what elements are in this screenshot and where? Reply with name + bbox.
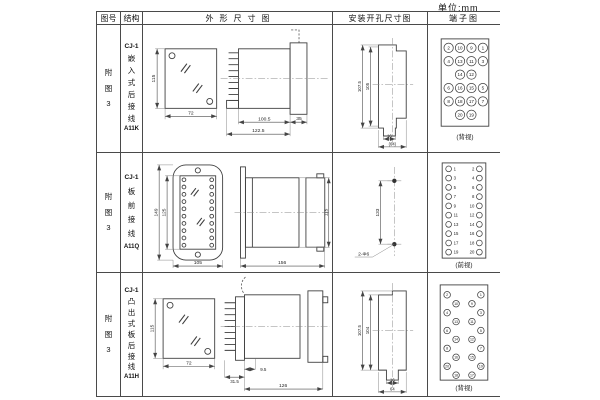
terminal-number: 2 xyxy=(472,166,475,171)
fig-char: 附 xyxy=(105,69,113,77)
model-label: CJ-1 xyxy=(124,44,138,51)
outline-drawing-row3: 115 72 9.5 31.5 126 xyxy=(143,273,332,396)
struct-char: 接 xyxy=(128,103,136,111)
terminal-number: 17 xyxy=(454,240,459,245)
fig-no-row2: 附 图 3 xyxy=(97,153,121,273)
terminal-number: 10 xyxy=(454,302,458,306)
dim-front-width: 105 xyxy=(194,260,202,266)
struct-char: 前 xyxy=(128,202,136,210)
terminal-number: 12 xyxy=(470,213,475,218)
drill-holes: 133 2-Φ6 xyxy=(355,167,402,258)
dim-cutout-h1: 16 xyxy=(387,133,392,138)
dim-side-b: 31.5 xyxy=(230,379,239,384)
struct-char: 板 xyxy=(128,331,136,339)
dim-cutout-v2: 104 xyxy=(365,326,370,334)
fig-char: 图 xyxy=(105,85,113,93)
terminal-number: 2 xyxy=(446,293,448,297)
terminal-number: 7 xyxy=(480,347,482,351)
terminal-number: 3 xyxy=(480,311,482,315)
outline-cell-row3: 115 72 9.5 31.5 126 xyxy=(143,273,333,397)
terminal-number: 7 xyxy=(454,194,457,199)
structure-row3: CJ-1 凸 出 式 板 后 接 线 A11H xyxy=(121,273,143,397)
terminal-number: 6 xyxy=(472,185,475,190)
outline-cell-row2: 149 125 105 156 115 xyxy=(143,153,333,273)
cutout-profile: 107.5 104 16 64 xyxy=(357,283,413,393)
terminal-number: 20 xyxy=(458,112,464,117)
terminal-number: 15 xyxy=(470,356,474,360)
terminal-number: 18 xyxy=(454,373,458,377)
dim-front-h2: 125 xyxy=(162,208,168,216)
dim-cutout-h2: 64 xyxy=(390,386,395,391)
struct-char: 式 xyxy=(128,79,136,87)
terminal-number: 3 xyxy=(454,176,457,181)
terminal-number: 19 xyxy=(479,365,483,369)
dim-side-a: 9.5 xyxy=(260,367,267,372)
struct-char: 入 xyxy=(128,67,136,75)
header-structure: 结构 xyxy=(121,12,143,25)
struct-char: 接 xyxy=(128,353,136,361)
dim-front-width: 72 xyxy=(188,110,194,116)
terminal-number: 14 xyxy=(454,338,458,342)
terminal-number: 8 xyxy=(472,194,475,199)
dim-cutout-v1: 107.5 xyxy=(357,324,362,336)
structure-row1: CJ-1 嵌 入 式 后 接 线 A11K xyxy=(121,25,143,153)
terminal-number: 4 xyxy=(446,311,448,315)
mounting-cell-row1: 107.5 105 16 (64) xyxy=(333,25,428,153)
side-view: 100.5 122.5 35 xyxy=(221,30,328,136)
dim-side-b: 115 xyxy=(323,208,329,216)
dim-cutout-h1: 16 xyxy=(390,378,395,383)
terminal-number: 16 xyxy=(454,356,458,360)
fig-no-row3: 附 图 3 xyxy=(97,273,121,397)
terminal-number: 19 xyxy=(454,250,459,255)
terminal-number: 1 xyxy=(454,166,457,171)
terminal-number: 4 xyxy=(472,176,475,181)
outline-drawing-row1: 115 72 100.5 122.5 35 xyxy=(143,25,332,152)
front-view: 115 72 xyxy=(149,299,214,369)
model-label: CJ-1 xyxy=(124,288,138,295)
terminal-number: 20 xyxy=(470,250,475,255)
terminal-number: 10 xyxy=(458,45,464,50)
side-view: 156 115 xyxy=(235,167,330,268)
dim-front-h1: 149 xyxy=(153,208,159,216)
terminal-number: 10 xyxy=(470,203,475,208)
struct-char: 凸 xyxy=(128,298,136,306)
terminal-number: 11 xyxy=(469,59,474,64)
mounting-cell-row3: 107.5 104 16 64 xyxy=(333,273,428,397)
fig-char: 3 xyxy=(106,100,110,108)
dim-front-height: 115 xyxy=(149,324,155,332)
type-code: A11H xyxy=(124,374,139,380)
terminal-number: 12 xyxy=(469,72,475,77)
terminal-number: 11 xyxy=(454,213,459,218)
terminal-number: 12 xyxy=(470,338,474,342)
terminal-number: 1 xyxy=(480,293,482,297)
dim-cutout-v2: 105 xyxy=(365,82,370,90)
terminal-number: 18 xyxy=(470,240,475,245)
dim-cutout-h2: (64) xyxy=(389,141,397,146)
struct-char: 线 xyxy=(128,115,136,123)
view-label: (背视) xyxy=(456,132,473,141)
terminal-grid: 2 10 9 1 4 13 11 3 14 12 6 16 15 5 8 18 … xyxy=(441,39,489,126)
fig-no-row1: 附 图 3 xyxy=(97,25,121,153)
dim-front-height: 115 xyxy=(151,74,157,82)
terminal-diagram-row3: 2 10 4 13 6 14 8 16 20 18 1 9 3 11 5 12 … xyxy=(428,273,500,396)
fig-char: 附 xyxy=(105,315,113,323)
terminal-number: 17 xyxy=(469,99,475,104)
dim-front-width: 72 xyxy=(186,360,192,366)
struct-char: 式 xyxy=(128,320,136,328)
header-outline: 外形尺寸图 xyxy=(143,12,333,25)
header-mounting: 安装开孔尺寸图 xyxy=(333,12,428,25)
mounting-drawing-row1: 107.5 105 16 (64) xyxy=(333,25,427,152)
terminal-number: 20 xyxy=(445,365,449,369)
type-code: A11Q xyxy=(124,244,139,250)
terminal-number: 11 xyxy=(470,320,474,324)
struct-char: 接 xyxy=(128,216,136,224)
terminal-cell-row2: 1 3 5 7 9 11 13 15 17 19 2 4 6 8 10 12 1… xyxy=(428,153,500,273)
terminal-number: 16 xyxy=(458,86,464,91)
terminal-number: 8 xyxy=(446,347,448,351)
model-label: CJ-1 xyxy=(124,175,138,182)
hole-spec-label: 2-Φ6 xyxy=(358,252,369,258)
spec-table: 图号 结构 外形尺寸图 安装开孔尺寸图 端子图 附 图 3 CJ-1 嵌 入 式… xyxy=(96,11,500,397)
terminal-number: 15 xyxy=(454,231,459,236)
dim-side-a: 100.5 xyxy=(258,116,271,122)
dim-side-c: 35 xyxy=(296,116,302,122)
terminal-number: 9 xyxy=(454,203,457,208)
header-terminal: 端子图 xyxy=(428,12,500,25)
view-label: (背视) xyxy=(455,383,472,392)
terminal-number: 19 xyxy=(469,112,475,117)
terminal-cell-row1: 2 10 9 1 4 13 11 3 14 12 6 16 15 5 8 18 … xyxy=(428,25,500,153)
fig-char: 图 xyxy=(105,209,113,217)
terminal-number: 14 xyxy=(458,72,464,77)
terminal-grid: 1 3 5 7 9 11 13 15 17 19 2 4 6 8 10 12 1… xyxy=(442,163,486,258)
struct-char: 出 xyxy=(128,309,136,317)
terminal-number: 9 xyxy=(471,302,473,306)
mounting-drawing-row2: 133 2-Φ6 xyxy=(333,153,427,272)
fig-char: 3 xyxy=(106,346,110,354)
terminal-number: 5 xyxy=(454,185,457,190)
terminal-number: 15 xyxy=(469,86,475,91)
fig-char: 3 xyxy=(106,224,110,232)
side-view: 9.5 31.5 126 xyxy=(221,277,330,391)
terminal-diagram-row1: 2 10 9 1 4 13 11 3 14 12 6 16 15 5 8 18 … xyxy=(428,25,500,152)
terminal-cell-row3: 2 10 4 13 6 14 8 16 20 18 1 9 3 11 5 12 … xyxy=(428,273,500,397)
struct-char: 后 xyxy=(128,91,136,99)
mounting-cell-row2: 133 2-Φ6 xyxy=(333,153,428,273)
mounting-drawing-row3: 107.5 104 16 64 xyxy=(333,273,427,396)
header-fig-no: 图号 xyxy=(97,12,121,25)
terminal-number: 6 xyxy=(446,329,448,333)
front-view: 149 125 105 xyxy=(153,165,222,268)
dim-cutout-v1: 107.5 xyxy=(357,80,362,92)
cutout-profile: 107.5 105 16 (64) xyxy=(357,38,413,148)
struct-char: 线 xyxy=(128,363,136,371)
terminal-number: 14 xyxy=(470,222,475,227)
struct-char: 板 xyxy=(128,188,136,196)
terminal-number: 13 xyxy=(458,59,464,64)
dim-hole-spacing: 133 xyxy=(375,208,381,216)
terminal-number: 5 xyxy=(480,329,482,333)
terminal-number: 13 xyxy=(454,320,458,324)
structure-row2: CJ-1 板 前 接 线 A11Q xyxy=(121,153,143,273)
terminal-number: 13 xyxy=(454,222,459,227)
terminal-number: 17 xyxy=(470,373,474,377)
type-code: A11K xyxy=(124,126,139,132)
outline-drawing-row2: 149 125 105 156 115 xyxy=(143,153,332,272)
dim-side-c: 126 xyxy=(279,383,287,389)
struct-char: 后 xyxy=(128,342,136,350)
terminal-diagram-row2: 1 3 5 7 9 11 13 15 17 19 2 4 6 8 10 12 1… xyxy=(428,153,500,272)
dim-side-b: 122.5 xyxy=(252,128,265,134)
view-label: (前视) xyxy=(455,260,472,269)
struct-char: 嵌 xyxy=(128,55,136,63)
terminal-grid: 2 10 4 13 6 14 8 16 20 18 1 9 3 11 5 12 … xyxy=(440,285,488,380)
fig-char: 图 xyxy=(105,331,113,339)
fig-char: 附 xyxy=(105,193,113,201)
outline-cell-row1: 115 72 100.5 122.5 35 xyxy=(143,25,333,153)
terminal-number: 16 xyxy=(470,231,475,236)
dim-side-a: 156 xyxy=(278,260,286,266)
struct-char: 线 xyxy=(128,230,136,238)
front-view: 115 72 xyxy=(151,49,217,119)
terminal-number: 18 xyxy=(458,99,464,104)
